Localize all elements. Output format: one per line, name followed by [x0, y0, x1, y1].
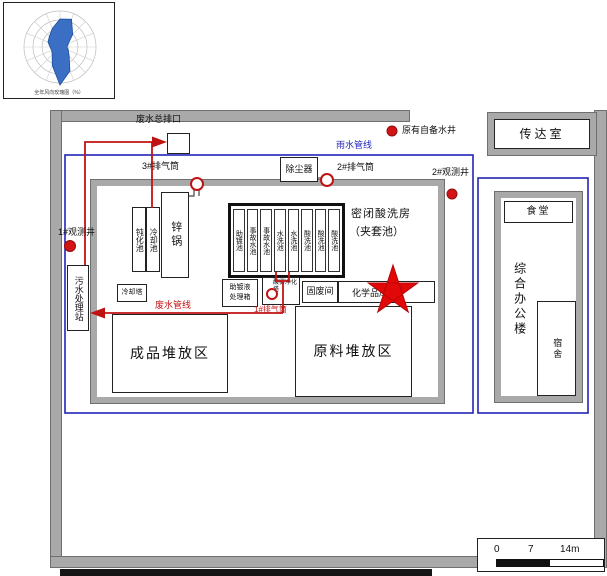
rain-pipe-label: 雨水管线 [336, 141, 372, 150]
stack3-label: 3#排气筒 [142, 162, 179, 171]
raw-material-area: 原料堆放区 [295, 306, 412, 397]
scrubber-label: 酸雾净化塔 [263, 278, 299, 294]
passivation-pool: 钝化池 [132, 207, 146, 272]
waste-pipe-label: 废水管线 [155, 301, 191, 310]
pickling-room-box: 助镀池 事故水池 事故水池 水洗池 水洗池 酸洗池 酸洗池 酸洗池 [228, 203, 345, 278]
gatehouse-label: 传达室 [519, 128, 564, 141]
office-label: 综合办公楼 [513, 262, 526, 337]
scale-bar-white-segment [549, 559, 604, 567]
dust-collector-label: 除尘器 [285, 165, 312, 174]
scale-bar-black-segment [496, 559, 551, 567]
pool-cell: 水洗池 [288, 209, 300, 272]
obs-well2-dot-icon [447, 189, 457, 199]
sewage-station: 污水处理站 [67, 265, 89, 331]
pool-cell: 助镀池 [233, 209, 245, 272]
wind-rose-shape [48, 19, 73, 85]
flux-treatment-label-2: 处理箱 [223, 294, 257, 301]
scrubber-box: 酸雾净化塔 [262, 277, 300, 305]
canteen-room: 食堂 [504, 201, 573, 223]
cooling-tower: 冷却塔 [117, 284, 147, 302]
obs-well1-label: 1#观测井 [58, 228, 95, 237]
sewage-station-label: 污水处理站 [73, 276, 82, 321]
main-outfall-label: 废水总排口 [136, 115, 181, 124]
scale-tick-14m: 14m [560, 545, 579, 556]
cooling-tower-label: 冷却塔 [122, 289, 143, 296]
arrow-to-outfall [152, 137, 167, 148]
flux-treatment-box: 助镀液 处理箱 [222, 279, 258, 307]
dorm-label: 宿舍 [552, 338, 561, 360]
scale-tick-7: 7 [528, 545, 534, 556]
pool-cell: 酸洗池 [328, 209, 340, 272]
dorm-room: 宿舍 [537, 301, 576, 396]
pool-cell: 酸洗池 [301, 209, 313, 272]
stack1-label: 1#排气筒 [254, 306, 287, 314]
pickling-room-label-2: （夹套池） [349, 227, 404, 239]
zinc-pot-label: 锌锅 [169, 221, 181, 249]
pool-cell: 事故水池 [247, 209, 259, 272]
boundary-wall-right [594, 110, 607, 568]
existing-well-dot-icon [387, 126, 397, 136]
existing-well-label: 原有自备水井 [402, 126, 456, 135]
bottom-edge-bar [60, 569, 432, 576]
zinc-pot: 锌锅 [161, 192, 189, 278]
dust-collector-box: 除尘器 [280, 157, 318, 182]
cooling-pool: 冷却池 [146, 207, 160, 272]
pool-cell: 酸洗池 [315, 209, 327, 272]
boundary-wall-left [50, 110, 62, 568]
passivation-label: 钝化池 [135, 228, 143, 252]
wind-rose-chart [4, 3, 114, 91]
boundary-wall-top [50, 110, 410, 122]
stack2-label: 2#排气筒 [337, 163, 374, 172]
canteen-label: 食堂 [527, 207, 551, 218]
raw-material-label: 原料堆放区 [314, 344, 394, 359]
gatehouse-room: 传达室 [494, 119, 590, 149]
obs-well1-dot-icon [65, 241, 76, 252]
chemical-store-label: 化学品库 [352, 289, 388, 298]
cooling-pool-label: 冷却池 [149, 228, 157, 252]
pool-cell: 水洗池 [274, 209, 286, 272]
chemical-store-room: 化学品库 [338, 281, 435, 303]
solid-waste-label: 固废间 [306, 287, 333, 296]
wind-rose-caption: 全年风向玫瑰图（%） [4, 91, 114, 96]
finished-goods-label: 成品堆放区 [130, 346, 210, 361]
site-plan: 全年风向玫瑰图（%） 传达室 食堂 综合办公楼 宿舍 钝化池 冷却池 锌锅 助镀… [0, 0, 607, 576]
wind-rose-panel: 全年风向玫瑰图（%） [3, 2, 115, 99]
flux-treatment-label-1: 助镀液 [223, 284, 257, 291]
solid-waste-room: 固废间 [302, 281, 338, 303]
main-outfall-box [167, 133, 190, 154]
pickling-room-label-1: 密闭酸洗房 [351, 209, 411, 221]
scale-tick-0: 0 [494, 545, 500, 556]
obs-well2-label: 2#观测井 [432, 168, 469, 177]
finished-goods-area: 成品堆放区 [112, 314, 228, 393]
pool-cell: 事故水池 [260, 209, 272, 272]
scale-bar: 0 7 14m [477, 538, 605, 572]
